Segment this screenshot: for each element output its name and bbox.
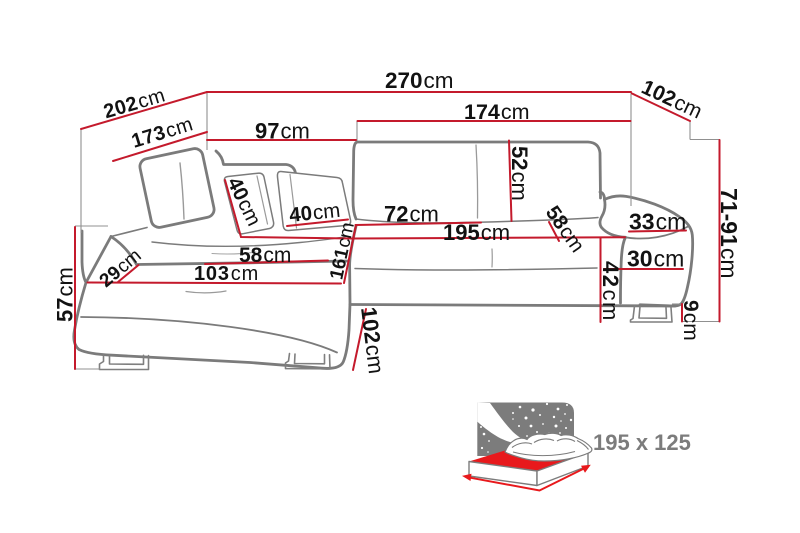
svg-text:71-91cm: 71-91cm: [716, 188, 742, 279]
svg-text:102cm: 102cm: [356, 306, 389, 376]
svg-text:103cm: 103cm: [194, 263, 259, 285]
svg-text:72cm: 72cm: [384, 202, 439, 227]
svg-text:42cm: 42cm: [598, 261, 623, 322]
svg-text:9cm: 9cm: [679, 300, 702, 341]
svg-text:195cm: 195cm: [443, 220, 510, 245]
svg-text:270cm: 270cm: [385, 68, 454, 93]
svg-text:174cm: 174cm: [464, 100, 530, 124]
svg-text:202cm: 202cm: [101, 84, 168, 123]
svg-text:30cm: 30cm: [627, 246, 684, 272]
svg-text:161cm: 161cm: [326, 220, 359, 281]
svg-text:97cm: 97cm: [255, 119, 310, 144]
svg-text:52cm: 52cm: [507, 146, 532, 201]
svg-text:58cm: 58cm: [541, 202, 589, 257]
svg-text:57cm: 57cm: [53, 267, 78, 322]
svg-text:33cm: 33cm: [629, 209, 686, 235]
svg-text:102cm: 102cm: [638, 76, 706, 124]
svg-text:173cm: 173cm: [129, 113, 196, 152]
svg-text:195 x 125: 195 x 125: [593, 430, 691, 455]
